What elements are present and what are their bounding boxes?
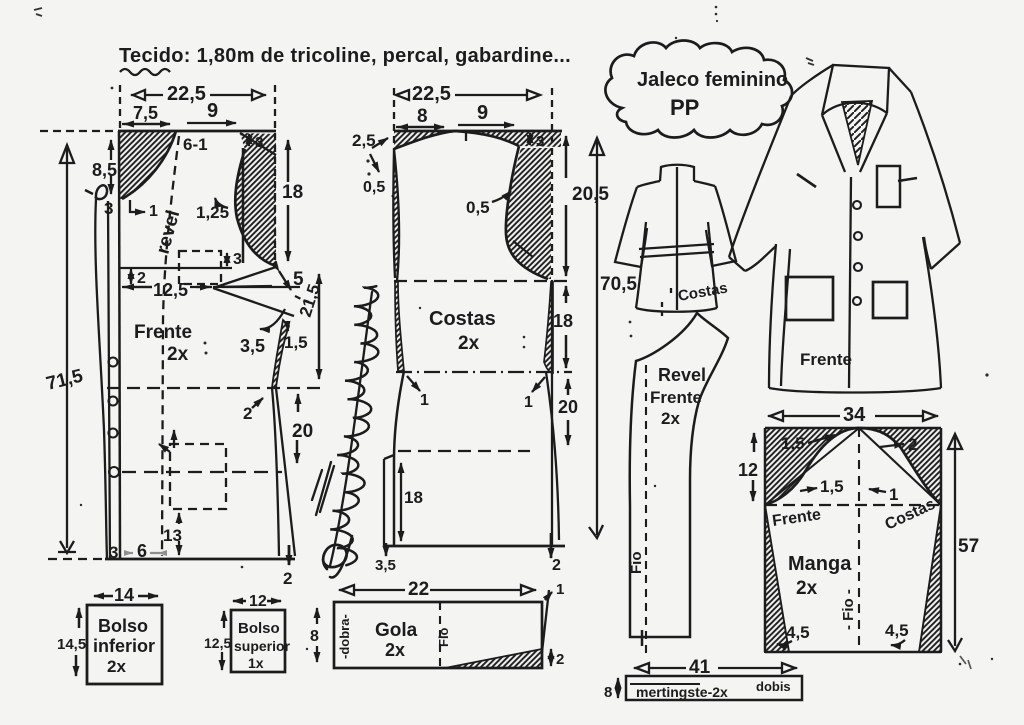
svg-text:1,5: 1,5: [781, 434, 805, 453]
svg-text:20: 20: [292, 421, 313, 442]
svg-text:1: 1: [889, 485, 898, 504]
svg-text:Frente: Frente: [800, 350, 852, 369]
svg-text:57: 57: [958, 536, 979, 557]
svg-text:18: 18: [404, 488, 423, 507]
svg-text:- Fio -: - Fio -: [840, 589, 857, 630]
svg-text:22: 22: [408, 579, 429, 600]
svg-text:PP: PP: [670, 95, 699, 120]
svg-text:0,5: 0,5: [363, 179, 385, 196]
svg-text:Bolso: Bolso: [238, 620, 280, 637]
svg-text:5: 5: [293, 269, 304, 290]
svg-text:2: 2: [552, 557, 561, 574]
svg-text:22,5: 22,5: [412, 83, 451, 105]
svg-text:2x: 2x: [167, 344, 189, 365]
svg-text:12: 12: [249, 593, 267, 610]
svg-text:6: 6: [137, 541, 147, 561]
svg-text:superior: superior: [234, 638, 291, 654]
svg-text:2: 2: [908, 435, 917, 454]
svg-text:8: 8: [417, 106, 428, 127]
svg-text:3,5: 3,5: [240, 336, 265, 356]
svg-text:3: 3: [109, 543, 118, 562]
svg-text:14,5: 14,5: [57, 636, 86, 653]
svg-text:8: 8: [310, 628, 319, 645]
svg-text:14: 14: [114, 585, 134, 605]
svg-text:Tecido: 1,80m de tricoline, pe: Tecido: 1,80m de tricoline, percal, gaba…: [119, 45, 571, 67]
svg-text:2x: 2x: [107, 657, 126, 676]
svg-text:2: 2: [243, 404, 252, 423]
svg-text:1: 1: [524, 394, 533, 411]
svg-text:18: 18: [553, 311, 573, 331]
svg-text:3: 3: [536, 133, 544, 150]
svg-text:6-1: 6-1: [183, 135, 208, 154]
svg-text:-dobra-: -dobra-: [337, 614, 352, 659]
svg-text:70,5: 70,5: [600, 274, 637, 295]
svg-text:12,5: 12,5: [153, 280, 188, 300]
svg-text:1: 1: [149, 203, 158, 220]
svg-text:Fio: Fio: [436, 627, 451, 647]
svg-text:2: 2: [556, 651, 564, 668]
svg-text:0,5: 0,5: [466, 198, 490, 217]
svg-text:Frente: Frente: [134, 322, 192, 343]
svg-text:3: 3: [233, 251, 242, 268]
svg-text:Revel: Revel: [658, 365, 706, 385]
svg-text:1,5: 1,5: [284, 333, 308, 352]
svg-text:Jaleco feminino: Jaleco feminino: [637, 69, 788, 91]
svg-text:22,5: 22,5: [167, 83, 206, 105]
svg-text:1x: 1x: [248, 655, 264, 671]
svg-text:12: 12: [738, 460, 758, 480]
svg-text:2x: 2x: [385, 640, 405, 660]
svg-text:2: 2: [283, 569, 292, 588]
svg-text:Gola: Gola: [375, 620, 418, 641]
svg-text:Frente: Frente: [650, 388, 702, 407]
svg-text:Bolso: Bolso: [98, 616, 148, 636]
svg-text:34: 34: [843, 404, 866, 426]
svg-text:1: 1: [556, 581, 564, 598]
svg-text:13: 13: [163, 526, 182, 545]
svg-text:8,5: 8,5: [92, 160, 117, 180]
svg-text:12,5: 12,5: [204, 635, 231, 651]
svg-text:7,5: 7,5: [133, 103, 158, 123]
svg-text:9: 9: [477, 102, 488, 124]
svg-text:8: 8: [604, 684, 612, 701]
svg-text:Costas: Costas: [429, 308, 496, 330]
svg-text:mertingste-2x: mertingste-2x: [636, 684, 728, 700]
svg-text:2x: 2x: [796, 578, 818, 599]
svg-text:Fio: Fio: [628, 552, 645, 575]
svg-text:20,5: 20,5: [572, 184, 609, 205]
svg-text:Manga: Manga: [788, 553, 852, 575]
svg-text:4,5: 4,5: [885, 621, 909, 640]
svg-text:dobis: dobis: [756, 679, 791, 694]
svg-text:2x: 2x: [661, 409, 680, 428]
svg-text:18: 18: [282, 182, 303, 203]
svg-text:1: 1: [420, 392, 429, 409]
svg-text:3,5: 3,5: [375, 557, 396, 574]
svg-text:1,5: 1,5: [820, 477, 844, 496]
svg-text:2x: 2x: [458, 333, 480, 354]
svg-text:4,5: 4,5: [786, 623, 810, 642]
svg-text:2: 2: [137, 270, 146, 287]
svg-text:20: 20: [558, 397, 578, 417]
svg-text:inferior: inferior: [93, 636, 155, 656]
svg-text:9: 9: [207, 100, 218, 122]
